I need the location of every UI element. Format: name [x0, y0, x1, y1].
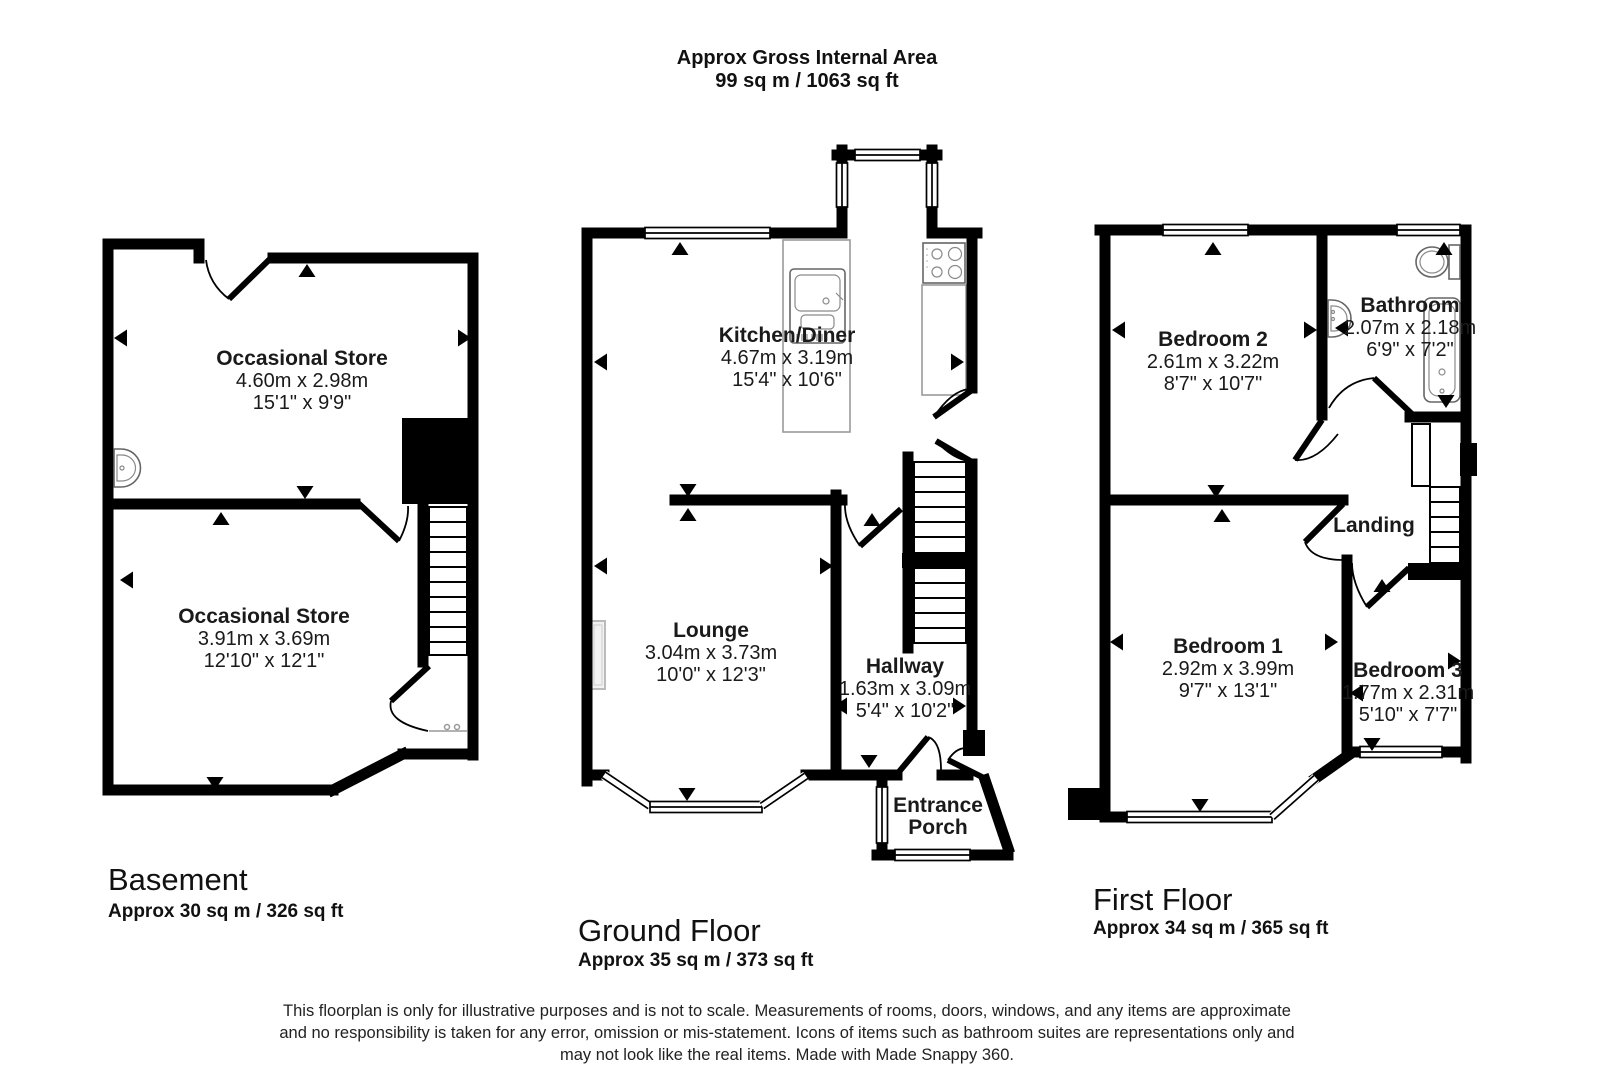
- room-dims-metric: 4.60m x 2.98m: [236, 370, 368, 392]
- first-floor-stairs: [1412, 424, 1460, 563]
- disclaimer-line: This floorplan is only for illustrative …: [283, 1002, 1291, 1020]
- room-dims-metric: 3.04m x 3.73m: [645, 642, 777, 664]
- porch-corner-block: [963, 730, 985, 756]
- disclaimer-line: and no responsibility is taken for any e…: [279, 1024, 1294, 1042]
- chimney-block: [402, 418, 478, 504]
- door: [936, 441, 972, 462]
- room-label: Lounge: [673, 619, 749, 642]
- room-dims-imperial: 5'10" x 7'7": [1359, 704, 1458, 726]
- room-dims-imperial: 10'0" x 12'3": [656, 664, 766, 686]
- room-label: Kitchen/Diner: [719, 324, 856, 347]
- basement-stairs: [429, 507, 467, 655]
- door: [390, 666, 429, 731]
- toilet-icon: [1416, 245, 1460, 279]
- room-label: Bedroom 1: [1173, 635, 1283, 658]
- disclaimer-line: may not look like the real items. Made w…: [560, 1046, 1014, 1064]
- disclaimer: This floorplan is only for illustrative …: [279, 1002, 1294, 1064]
- gross-internal-area-title: Approx Gross Internal Area: [677, 47, 938, 69]
- sink-icon: [114, 449, 141, 487]
- window: [645, 228, 770, 239]
- window: [1163, 225, 1248, 236]
- radiator: [591, 621, 605, 689]
- room-dims-metric: 2.61m x 3.22m: [1147, 351, 1279, 373]
- window: [895, 850, 970, 861]
- room-dims-metric: 2.07m x 2.18m: [1344, 317, 1476, 339]
- room-label: Bathroom: [1360, 294, 1459, 317]
- room-label: Bedroom 2: [1158, 328, 1268, 351]
- window: [837, 163, 848, 207]
- basement-plan: Occasional Store 4.60m x 2.98m 15'1" x 9…: [108, 244, 478, 922]
- room-dims-metric: 1.77m x 2.31m: [1342, 682, 1474, 704]
- floor-area-basement: Approx 30 sq m / 326 sq ft: [108, 901, 344, 922]
- front-door: [898, 737, 941, 773]
- room-dims-imperial: 15'4" x 10'6": [732, 369, 842, 391]
- bay-window: [602, 772, 808, 812]
- measure-arrows: [114, 264, 471, 790]
- room-dims-imperial: 9'7" x 13'1": [1179, 680, 1278, 702]
- door: [206, 256, 273, 299]
- window: [855, 150, 920, 161]
- door: [357, 502, 408, 541]
- floor-area-ground: Approx 35 sq m / 373 sq ft: [578, 950, 814, 971]
- floor-title-basement: Basement: [108, 862, 248, 897]
- stair-wall: [1408, 563, 1466, 580]
- room-dims-metric: 4.67m x 3.19m: [721, 347, 853, 369]
- window: [877, 787, 888, 843]
- ground-floor-plan: Kitchen/Diner 4.67m x 3.19m 15'4" x 10'6…: [578, 150, 1008, 972]
- room-dims-metric: 1.63m x 3.09m: [839, 678, 971, 700]
- room-label: Occasional Store: [178, 605, 350, 628]
- room-dims-imperial: 15'1" x 9'9": [253, 392, 352, 414]
- basement-walls: [108, 244, 473, 790]
- room-label: Bedroom 3: [1353, 659, 1463, 682]
- room-dims-metric: 3.91m x 3.69m: [198, 628, 330, 650]
- hob-icon: [923, 243, 965, 283]
- room-label: Landing: [1333, 514, 1415, 537]
- header: Approx Gross Internal Area 99 sq m / 106…: [677, 47, 938, 92]
- door: [1329, 378, 1412, 414]
- room-dims-imperial: 12'10" x 12'1": [204, 650, 325, 672]
- room-dims-imperial: 5'4" x 10'2": [856, 700, 955, 722]
- door: [1295, 420, 1338, 460]
- bay-window: [1127, 776, 1318, 823]
- window: [1397, 225, 1460, 236]
- first-floor-plan: Bedroom 2 2.61m x 3.22m 8'7" x 10'7" Bat…: [1068, 225, 1477, 940]
- floor-area-first: Approx 34 sq m / 365 sq ft: [1093, 918, 1329, 939]
- gross-internal-area-value: 99 sq m / 1063 sq ft: [715, 70, 899, 92]
- room-dims-imperial: 6'9" x 7'2": [1366, 339, 1453, 361]
- chimney-block: [1068, 788, 1105, 820]
- floorplan-page: Approx Gross Internal Area 99 sq m / 106…: [0, 0, 1614, 1080]
- floor-title-ground: Ground Floor: [578, 913, 761, 948]
- floor-title-first: First Floor: [1093, 882, 1233, 917]
- understairs-cupboard: [429, 725, 467, 732]
- room-dims-metric: 2.92m x 3.99m: [1162, 658, 1294, 680]
- room-dims-imperial: 8'7" x 10'7": [1164, 373, 1263, 395]
- room-label: Porch: [908, 816, 968, 839]
- wall-notch: [1460, 443, 1477, 476]
- floorplan-drawing: Approx Gross Internal Area 99 sq m / 106…: [0, 0, 1614, 1080]
- kitchen-counter: [922, 285, 966, 395]
- room-label: Entrance: [893, 794, 983, 817]
- room-label: Occasional Store: [216, 347, 388, 370]
- room-label: Hallway: [866, 655, 945, 678]
- window: [927, 163, 938, 207]
